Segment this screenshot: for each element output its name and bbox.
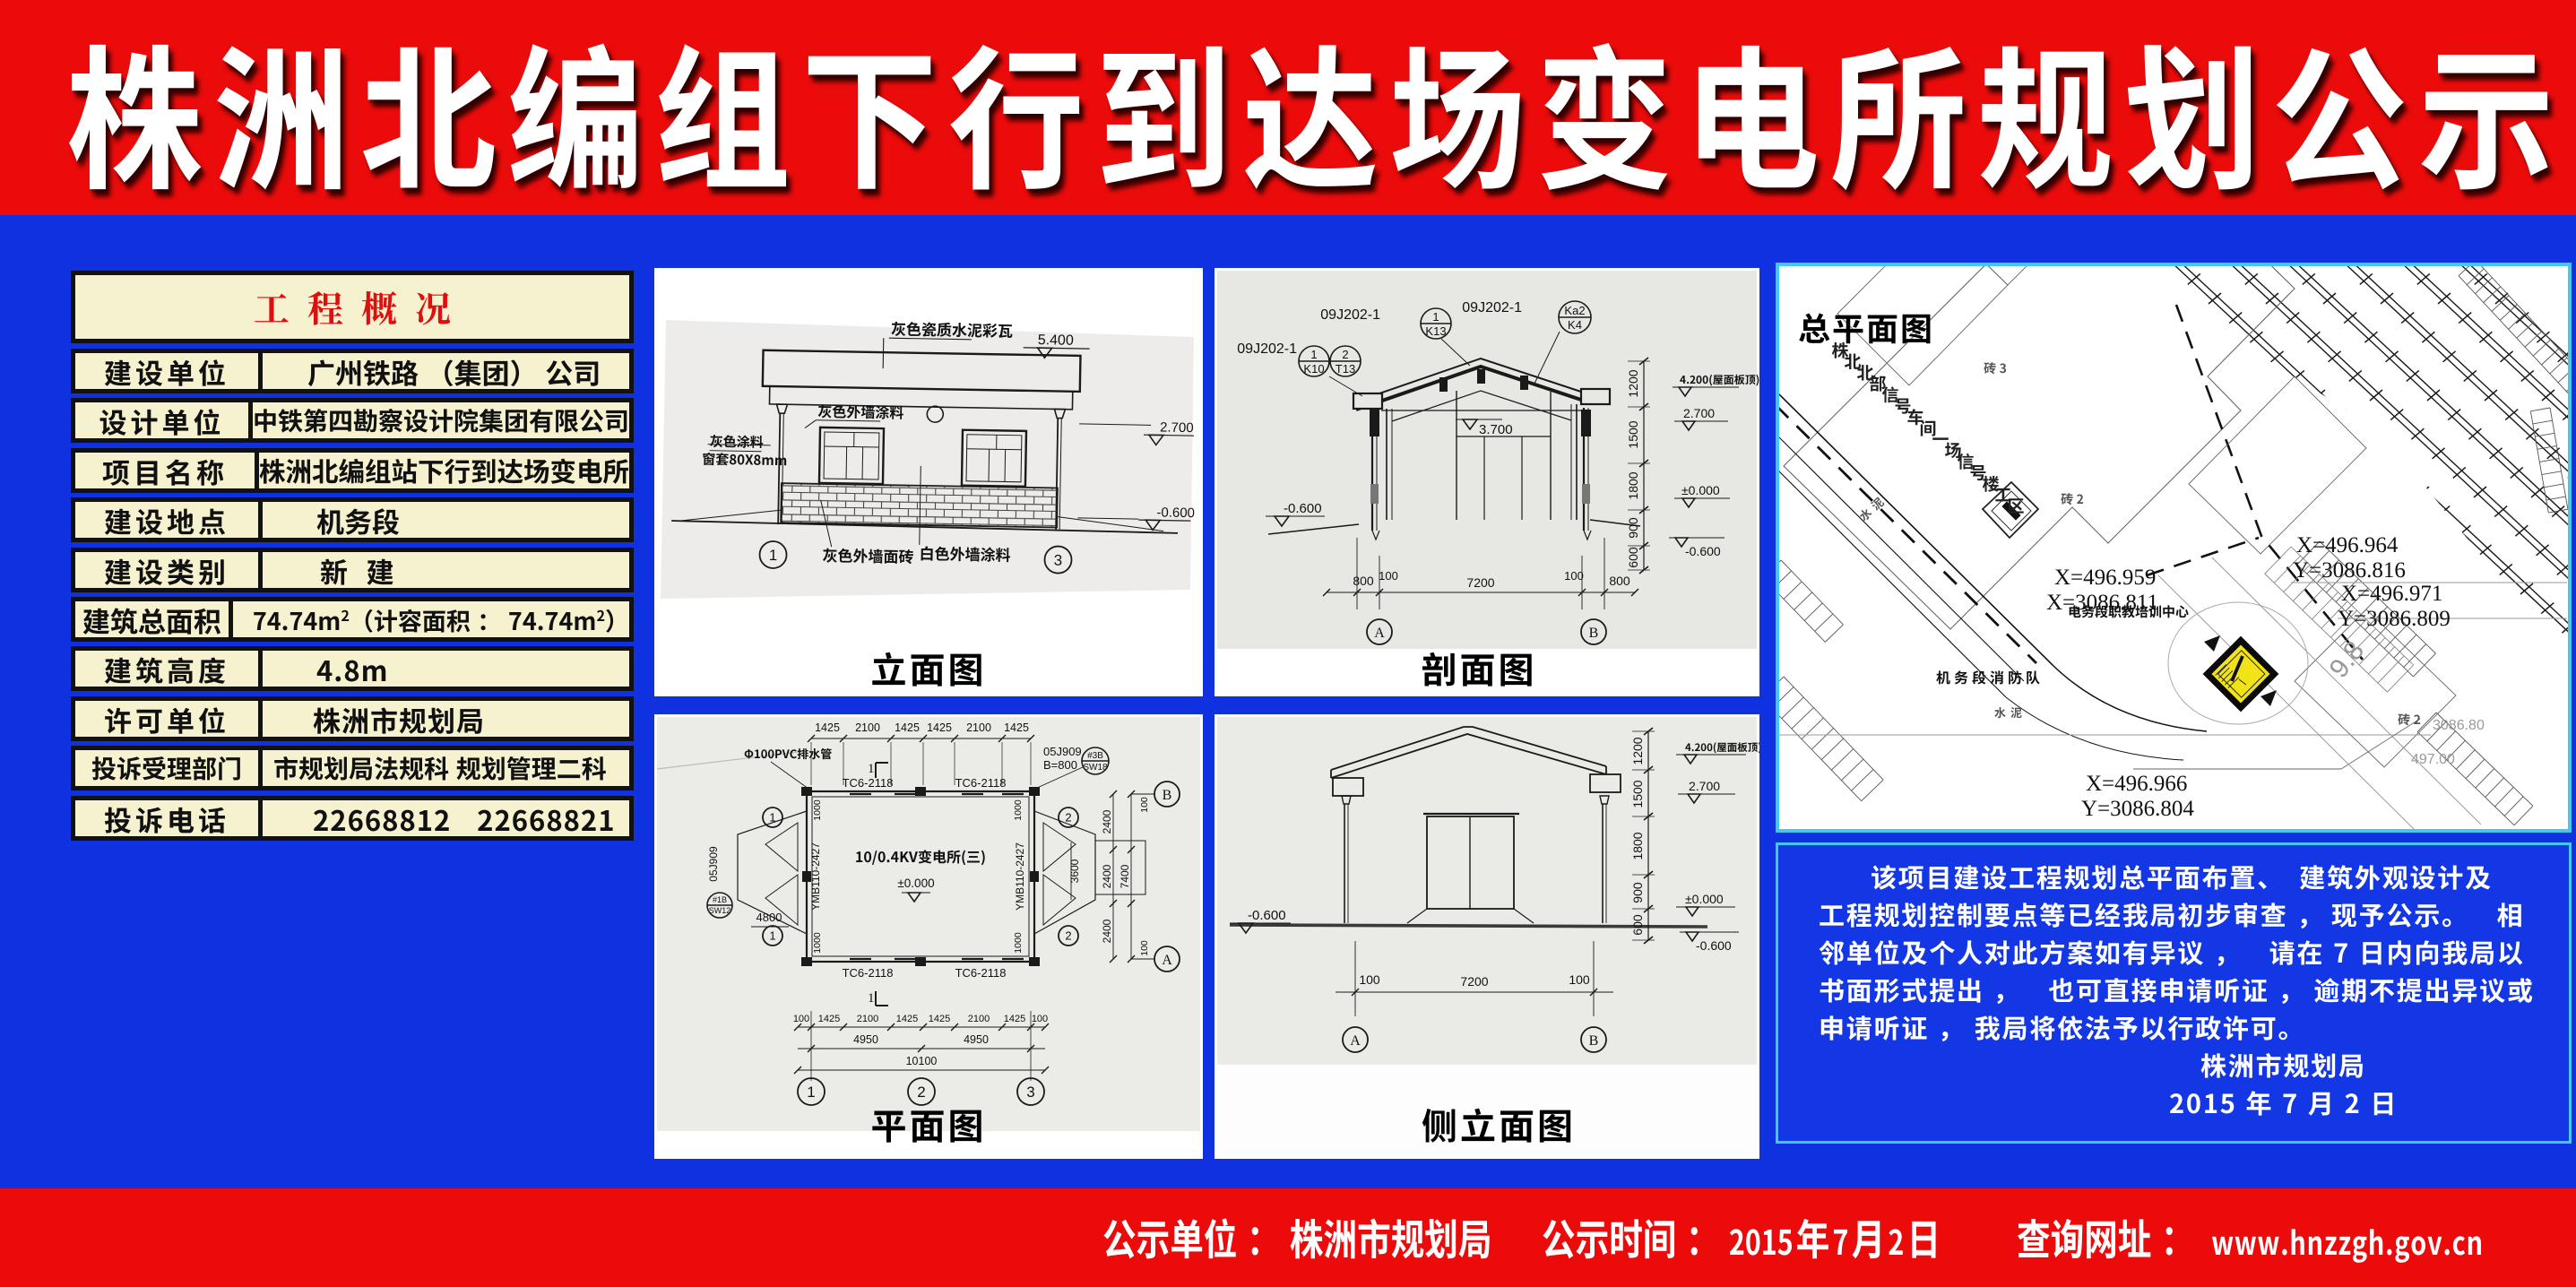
svg-text:3086.80: 3086.80 <box>2433 718 2485 733</box>
svg-text:100: 100 <box>1569 972 1590 987</box>
svg-text:总平面图: 总平面图 <box>1798 304 1934 350</box>
svg-text:1425: 1425 <box>815 721 840 734</box>
svg-text:1: 1 <box>769 547 778 564</box>
svg-text:3: 3 <box>1054 552 1063 569</box>
svg-text:497.00: 497.00 <box>2411 752 2455 767</box>
svg-text:10100: 10100 <box>906 1055 938 1067</box>
svg-text:A: A <box>1350 1033 1361 1049</box>
svg-text:1425: 1425 <box>896 1014 918 1024</box>
svg-text:1: 1 <box>868 991 875 1006</box>
svg-text:B: B <box>1163 788 1172 803</box>
svg-text:B: B <box>1589 1033 1599 1049</box>
svg-text:B=800: B=800 <box>1043 758 1077 772</box>
svg-text:7200: 7200 <box>1460 974 1488 989</box>
svg-text:灰色涂料: 灰色涂料 <box>710 432 764 452</box>
svg-text:SW12: SW12 <box>709 906 731 915</box>
svg-text:K10: K10 <box>1303 362 1324 376</box>
svg-text:区: 区 <box>2007 494 2024 518</box>
svg-text:YMB110-2427: YMB110-2427 <box>1014 842 1026 911</box>
svg-text:100: 100 <box>793 1014 809 1024</box>
svg-text:1: 1 <box>807 1084 815 1101</box>
svg-text:平面图: 平面图 <box>871 1098 987 1150</box>
svg-text:X=496.971: X=496.971 <box>2341 582 2442 606</box>
svg-text:1000: 1000 <box>1013 932 1024 954</box>
svg-text:TC6-2118: TC6-2118 <box>955 966 1007 980</box>
svg-text:YMB110-2427: YMB110-2427 <box>809 842 822 911</box>
svg-text:±0.000: ±0.000 <box>1685 892 1724 906</box>
svg-text:1: 1 <box>769 929 775 943</box>
svg-text:800: 800 <box>1609 574 1630 588</box>
svg-text:4950: 4950 <box>964 1033 989 1046</box>
svg-text:Y=3086.816: Y=3086.816 <box>2293 558 2406 583</box>
svg-text:B: B <box>1589 626 1599 641</box>
svg-text:1: 1 <box>1432 310 1439 324</box>
svg-text:±0.000: ±0.000 <box>897 877 934 890</box>
svg-text:1425: 1425 <box>1004 1014 1025 1024</box>
svg-text:1500: 1500 <box>1626 420 1640 448</box>
svg-text:100: 100 <box>1359 972 1380 987</box>
svg-text:立面图: 立面图 <box>871 642 987 694</box>
svg-text:T13: T13 <box>1336 362 1355 376</box>
svg-text:900: 900 <box>1630 882 1645 903</box>
svg-text:100: 100 <box>1139 940 1150 956</box>
svg-text:2.700: 2.700 <box>1160 420 1194 436</box>
svg-text:1: 1 <box>868 762 875 776</box>
svg-text:砖 2: 砖 2 <box>2061 490 2084 508</box>
svg-text:1425: 1425 <box>929 1014 950 1024</box>
svg-text:2100: 2100 <box>966 721 991 734</box>
svg-text:1: 1 <box>1310 348 1317 361</box>
svg-text:-0.600: -0.600 <box>1156 505 1195 521</box>
svg-text:2: 2 <box>1065 811 1071 825</box>
svg-text:K4: K4 <box>1568 318 1582 332</box>
svg-text:砖 3: 砖 3 <box>1984 359 2007 377</box>
svg-text:X=3086.811: X=3086.811 <box>2046 591 2158 615</box>
svg-text:Y=3086.804: Y=3086.804 <box>2081 797 2194 821</box>
svg-text:#3B: #3B <box>1087 751 1103 761</box>
svg-text:1000: 1000 <box>812 932 823 954</box>
svg-text:1425: 1425 <box>927 721 952 734</box>
svg-text:Y=3086.809: Y=3086.809 <box>2338 607 2451 631</box>
svg-text:灰色外墙面砖: 灰色外墙面砖 <box>822 543 913 567</box>
svg-text:X=496.959: X=496.959 <box>2054 566 2156 590</box>
svg-text:100: 100 <box>1032 1014 1048 1024</box>
svg-text:2.700: 2.700 <box>1689 779 1720 793</box>
svg-text:100: 100 <box>1139 797 1150 813</box>
svg-text:4950: 4950 <box>853 1033 878 1046</box>
svg-text:砖 2: 砖 2 <box>2398 711 2421 729</box>
svg-text:09J202-1: 09J202-1 <box>1237 341 1297 357</box>
svg-text:-0.600: -0.600 <box>1685 544 1721 558</box>
svg-text:±0.000: ±0.000 <box>1681 483 1720 497</box>
svg-text:1000: 1000 <box>1013 799 1024 821</box>
svg-text:机 务 段 消 防 队: 机 务 段 消 防 队 <box>1936 666 2040 687</box>
svg-text:侧立面图: 侧立面图 <box>1422 1098 1576 1150</box>
svg-text:Φ100PVC排水管: Φ100PVC排水管 <box>744 745 832 762</box>
svg-text:-0.600: -0.600 <box>1248 908 1286 923</box>
svg-text:100: 100 <box>1379 569 1398 583</box>
svg-text:-0.600: -0.600 <box>1284 501 1322 516</box>
svg-text:1800: 1800 <box>1630 832 1645 859</box>
svg-text:1200: 1200 <box>1626 369 1640 397</box>
svg-text:窗套80X8mm: 窗套80X8mm <box>702 450 787 471</box>
svg-text:2100: 2100 <box>855 721 880 734</box>
svg-text:900: 900 <box>1626 517 1640 539</box>
svg-text:1800: 1800 <box>1626 471 1640 499</box>
svg-text:7400: 7400 <box>1119 864 1131 888</box>
svg-text:#1B: #1B <box>713 895 727 904</box>
svg-text:100: 100 <box>1564 569 1584 583</box>
svg-text:2400: 2400 <box>1101 864 1113 888</box>
svg-text:600: 600 <box>1626 547 1640 568</box>
svg-text:7200: 7200 <box>1466 575 1494 590</box>
svg-text:水泥: 水泥 <box>1994 704 2027 721</box>
svg-text:剖面图: 剖面图 <box>1422 642 1537 694</box>
svg-text:05J909: 05J909 <box>707 846 720 882</box>
svg-text:600: 600 <box>1630 914 1645 936</box>
svg-text:白色外墙涂料: 白色外墙涂料 <box>919 541 1010 566</box>
svg-text:1000: 1000 <box>812 799 823 821</box>
svg-text:2: 2 <box>1342 348 1348 361</box>
svg-text:2400: 2400 <box>1101 919 1113 943</box>
svg-text:1425: 1425 <box>895 721 920 734</box>
svg-text:5.400: 5.400 <box>1038 333 1074 349</box>
svg-text:3: 3 <box>1026 1084 1034 1101</box>
svg-text:2100: 2100 <box>857 1014 878 1024</box>
svg-text:SW18: SW18 <box>1083 763 1108 773</box>
svg-text:K13: K13 <box>1425 324 1446 338</box>
svg-text:灰色瓷质水泥彩瓦: 灰色瓷质水泥彩瓦 <box>891 316 1013 341</box>
svg-text:09J202-1: 09J202-1 <box>1462 300 1522 315</box>
svg-text:4.200(屋面板顶): 4.200(屋面板顶) <box>1680 372 1759 387</box>
svg-text:-0.600: -0.600 <box>1696 938 1732 953</box>
svg-text:Ka2: Ka2 <box>1564 304 1585 317</box>
svg-text:3.700: 3.700 <box>1479 422 1513 437</box>
svg-text:TC6-2118: TC6-2118 <box>843 966 894 980</box>
svg-text:2400: 2400 <box>1101 809 1113 834</box>
svg-text:4800: 4800 <box>756 911 782 924</box>
svg-text:1425: 1425 <box>1004 721 1029 734</box>
svg-text:1500: 1500 <box>1630 780 1645 808</box>
svg-text:A: A <box>1374 626 1385 641</box>
svg-text:3600: 3600 <box>1068 859 1081 883</box>
svg-text:2: 2 <box>1065 929 1071 943</box>
svg-text:TC6-2118: TC6-2118 <box>955 776 1007 790</box>
svg-text:灰色外墙涂料: 灰色外墙涂料 <box>817 400 903 423</box>
svg-text:1200: 1200 <box>1630 737 1645 764</box>
svg-text:1: 1 <box>769 811 775 825</box>
svg-text:4.200(屋面板顶): 4.200(屋面板顶) <box>1685 740 1759 755</box>
svg-text:TC6-2118: TC6-2118 <box>843 776 894 790</box>
svg-text:1425: 1425 <box>818 1014 840 1024</box>
svg-text:2100: 2100 <box>968 1014 990 1024</box>
svg-text:2.700: 2.700 <box>1683 406 1715 420</box>
svg-text:10/0.4KV变电所(三): 10/0.4KV变电所(三) <box>855 845 986 867</box>
svg-text:X=496.964: X=496.964 <box>2296 533 2399 557</box>
svg-text:800: 800 <box>1353 574 1374 588</box>
svg-text:X=496.966: X=496.966 <box>2086 772 2187 796</box>
svg-text:09J202-1: 09J202-1 <box>1320 307 1380 323</box>
svg-text:A: A <box>1162 953 1172 968</box>
svg-text:05J909: 05J909 <box>1043 745 1082 758</box>
